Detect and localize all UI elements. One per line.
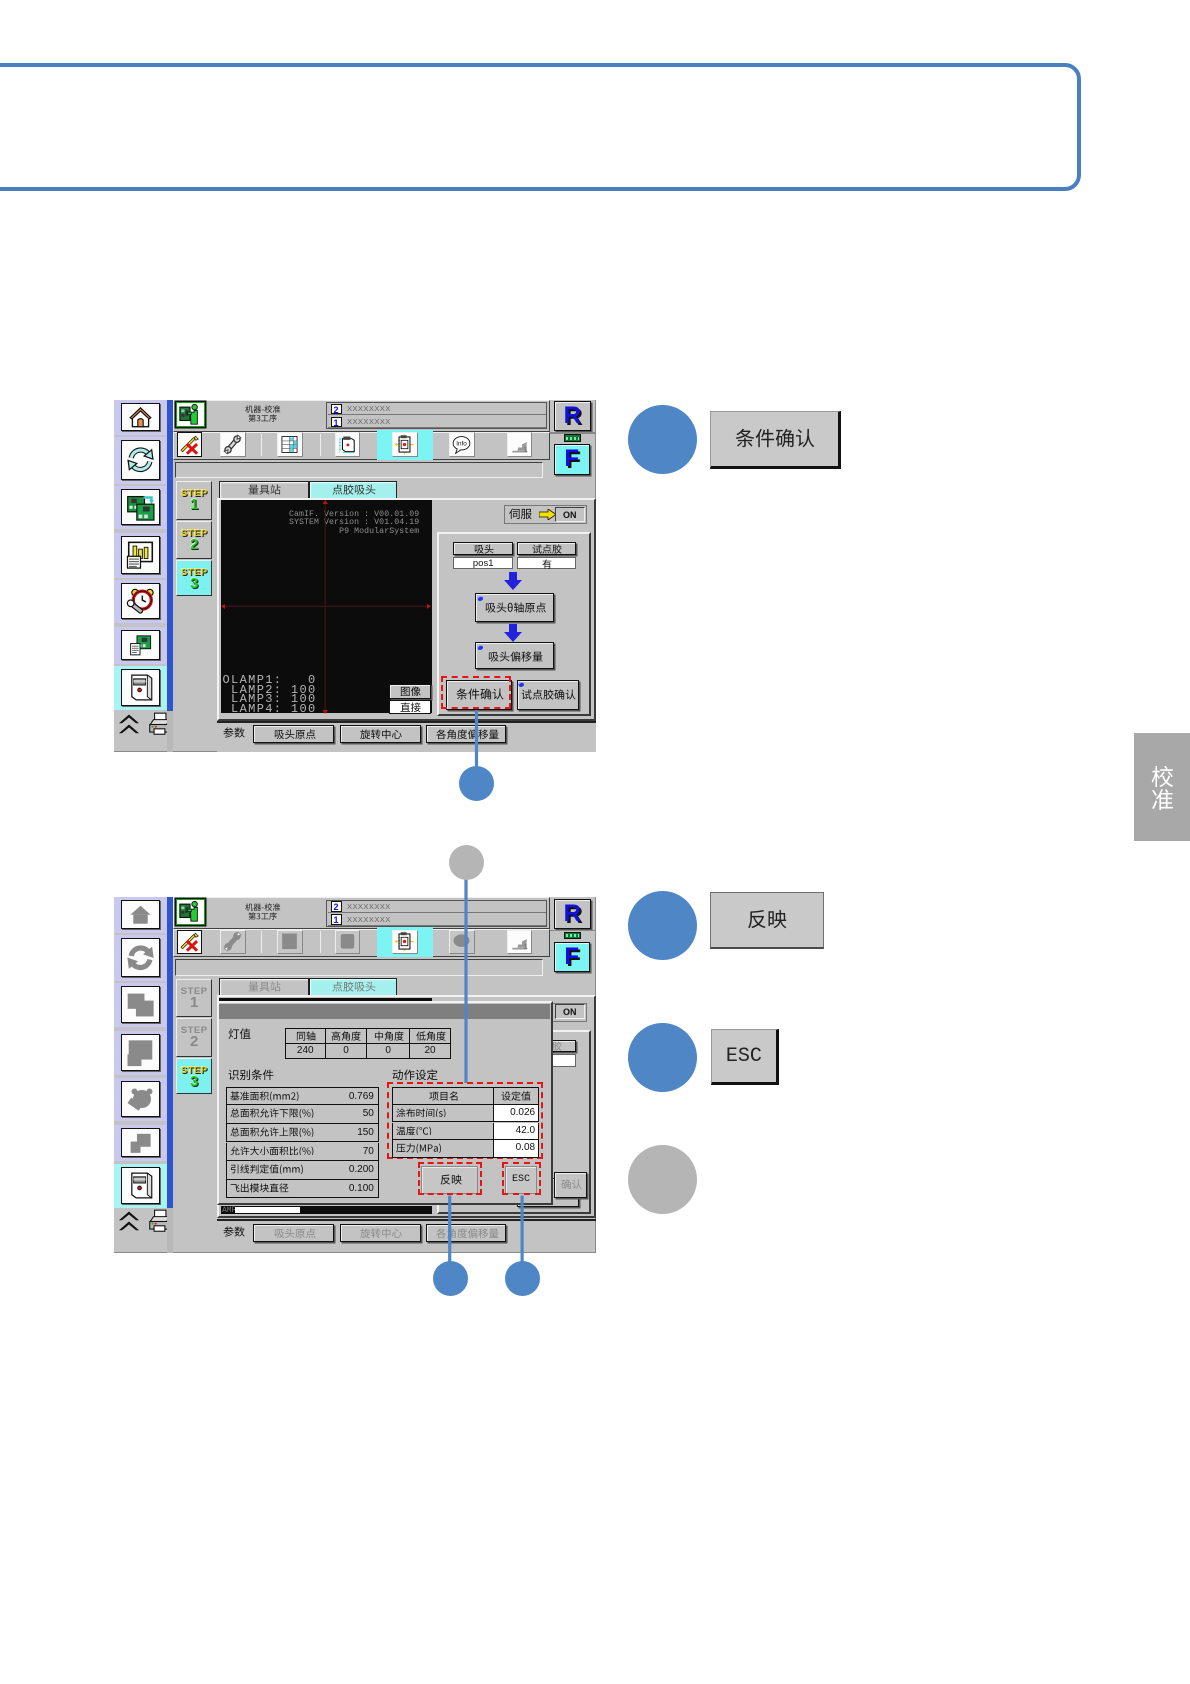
svg-text:1: 1 xyxy=(524,943,528,951)
svg-text:1: 1 xyxy=(524,446,528,454)
svg-text:Info: Info xyxy=(456,440,467,447)
